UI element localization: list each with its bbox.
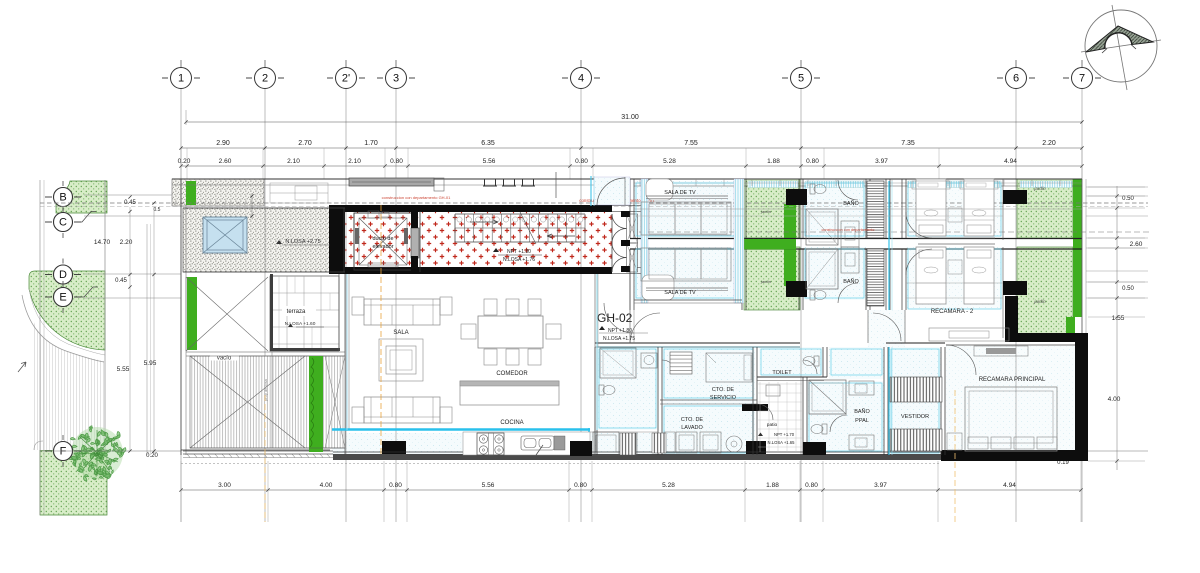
svg-text:CTO. DE: CTO. DE <box>681 417 704 423</box>
svg-text:2: 2 <box>262 73 268 85</box>
svg-text:4.94: 4.94 <box>1003 482 1016 489</box>
svg-text:6.35: 6.35 <box>481 140 495 147</box>
svg-text:BAÑO: BAÑO <box>843 200 859 207</box>
svg-text:2.60: 2.60 <box>219 158 232 165</box>
svg-text:7.35: 7.35 <box>901 140 915 147</box>
svg-text:CTO. DE: CTO. DE <box>712 387 735 393</box>
svg-text:6: 6 <box>1013 73 1019 85</box>
svg-text:RECAMARA PRINCIPAL: RECAMARA PRINCIPAL <box>979 377 1046 383</box>
svg-text:LAVADO: LAVADO <box>681 425 703 431</box>
svg-text:SALA DE TV: SALA DE TV <box>664 190 696 196</box>
svg-text:vacío: vacío <box>217 356 232 362</box>
svg-text:0.45: 0.45 <box>124 200 136 206</box>
svg-text:jardín: jardín <box>1033 186 1046 191</box>
svg-text:5.55: 5.55 <box>117 366 130 373</box>
svg-text:5.28: 5.28 <box>662 482 675 489</box>
svg-text:0.80: 0.80 <box>806 158 819 165</box>
svg-text:4.94: 4.94 <box>1004 158 1017 165</box>
svg-text:N.LOSA +2.75: N.LOSA +2.75 <box>285 239 320 245</box>
svg-text:proy de losa: proy de losa <box>263 378 268 401</box>
svg-text:construccion con departamento: construccion con departamento <box>822 228 875 232</box>
svg-text:0.20: 0.20 <box>146 453 158 459</box>
svg-text:TOILET: TOILET <box>772 370 792 376</box>
svg-text:5.95: 5.95 <box>144 360 157 367</box>
svg-text:2.20: 2.20 <box>1042 140 1056 147</box>
svg-text:COCINA: COCINA <box>500 420 523 426</box>
svg-text:NPT +1.80: NPT +1.80 <box>507 249 531 255</box>
svg-text:0.45: 0.45 <box>115 278 127 284</box>
svg-text:4.00: 4.00 <box>320 482 333 489</box>
svg-text:1.88: 1.88 <box>766 482 779 489</box>
svg-text:3.97: 3.97 <box>875 158 888 165</box>
svg-text:0.80: 0.80 <box>574 482 587 489</box>
svg-text:5.28: 5.28 <box>663 158 676 165</box>
svg-text:E: E <box>59 292 66 304</box>
svg-text:14.70: 14.70 <box>94 239 111 246</box>
svg-text:patio: patio <box>767 422 778 428</box>
svg-text:N.LOSA +1.65: N.LOSA +1.65 <box>768 440 796 445</box>
svg-text:C: C <box>59 217 67 229</box>
svg-text:1.88: 1.88 <box>767 158 780 165</box>
svg-text:2.60: 2.60 <box>1130 241 1143 248</box>
svg-text:2.20: 2.20 <box>120 239 133 246</box>
svg-text:2.90: 2.90 <box>216 140 230 147</box>
svg-text:jardín: jardín <box>760 279 772 284</box>
svg-text:0.80: 0.80 <box>389 482 402 489</box>
svg-text:4: 4 <box>578 73 584 85</box>
svg-text:RECAMARA - 2: RECAMARA - 2 <box>931 309 974 315</box>
svg-text:3.00: 3.00 <box>218 482 231 489</box>
svg-text:elevador: elevador <box>372 244 393 250</box>
svg-text:1.70: 1.70 <box>364 140 378 147</box>
svg-text:2.10: 2.10 <box>287 158 300 165</box>
svg-text:D: D <box>59 269 67 281</box>
svg-text:0.50: 0.50 <box>1122 286 1134 292</box>
svg-text:5.56: 5.56 <box>483 158 496 165</box>
svg-text:COMEDOR: COMEDOR <box>496 371 528 377</box>
svg-text:31.00: 31.00 <box>621 114 639 121</box>
svg-text:SERVICIO: SERVICIO <box>710 395 737 401</box>
svg-text:2.70: 2.70 <box>298 140 312 147</box>
svg-text:B: B <box>59 192 66 204</box>
svg-text:terraza: terraza <box>287 309 306 315</box>
svg-text:PPAL: PPAL <box>855 418 869 424</box>
svg-text:0.80: 0.80 <box>805 482 818 489</box>
svg-text:construccion con departamento: construccion con departamento GH-01 <box>382 195 451 200</box>
svg-text:7.55: 7.55 <box>684 140 698 147</box>
svg-text:0.50: 0.50 <box>1122 196 1134 202</box>
svg-text:2.10: 2.10 <box>348 158 361 165</box>
svg-text:0.20: 0.20 <box>178 158 191 165</box>
svg-text:BAÑO: BAÑO <box>854 408 870 415</box>
svg-text:5: 5 <box>798 73 804 85</box>
svg-text:NPT +1.70: NPT +1.70 <box>774 432 795 437</box>
svg-text:3: 3 <box>393 73 399 85</box>
svg-text:1: 1 <box>178 73 184 85</box>
svg-text:0.80: 0.80 <box>575 158 588 165</box>
svg-text:SALA DE TV: SALA DE TV <box>664 290 696 296</box>
svg-text:F: F <box>60 446 67 458</box>
svg-text:GH-02: GH-02 <box>597 311 633 325</box>
svg-text:jardín: jardín <box>1033 299 1046 304</box>
svg-text:2': 2' <box>342 73 350 85</box>
svg-text:SALA: SALA <box>393 330 408 336</box>
svg-text:0.5: 0.5 <box>154 207 161 213</box>
svg-text:7: 7 <box>1079 73 1085 85</box>
svg-text:3.97: 3.97 <box>874 482 887 489</box>
svg-text:N.LOSA +1.76: N.LOSA +1.76 <box>503 257 535 263</box>
svg-text:ducto de: ducto de <box>372 236 393 242</box>
svg-text:4.00: 4.00 <box>1108 396 1121 403</box>
svg-text:5.56: 5.56 <box>482 482 495 489</box>
svg-text:VESTIDOR: VESTIDOR <box>901 414 929 420</box>
svg-text:jardín: jardín <box>760 209 772 214</box>
svg-text:0.80: 0.80 <box>390 158 403 165</box>
